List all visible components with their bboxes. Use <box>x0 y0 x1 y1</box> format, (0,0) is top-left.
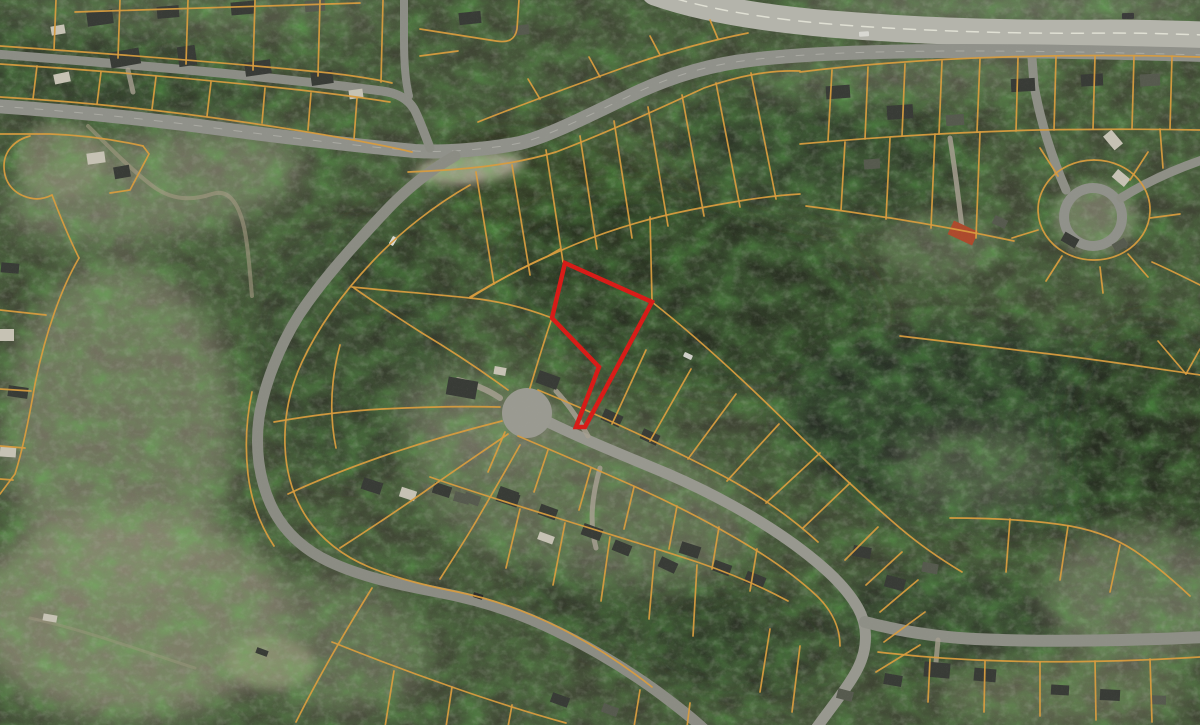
grain-overlay <box>0 0 1200 725</box>
satellite-parcel-map-view[interactable] <box>0 0 1200 725</box>
map-canvas <box>0 0 1200 725</box>
